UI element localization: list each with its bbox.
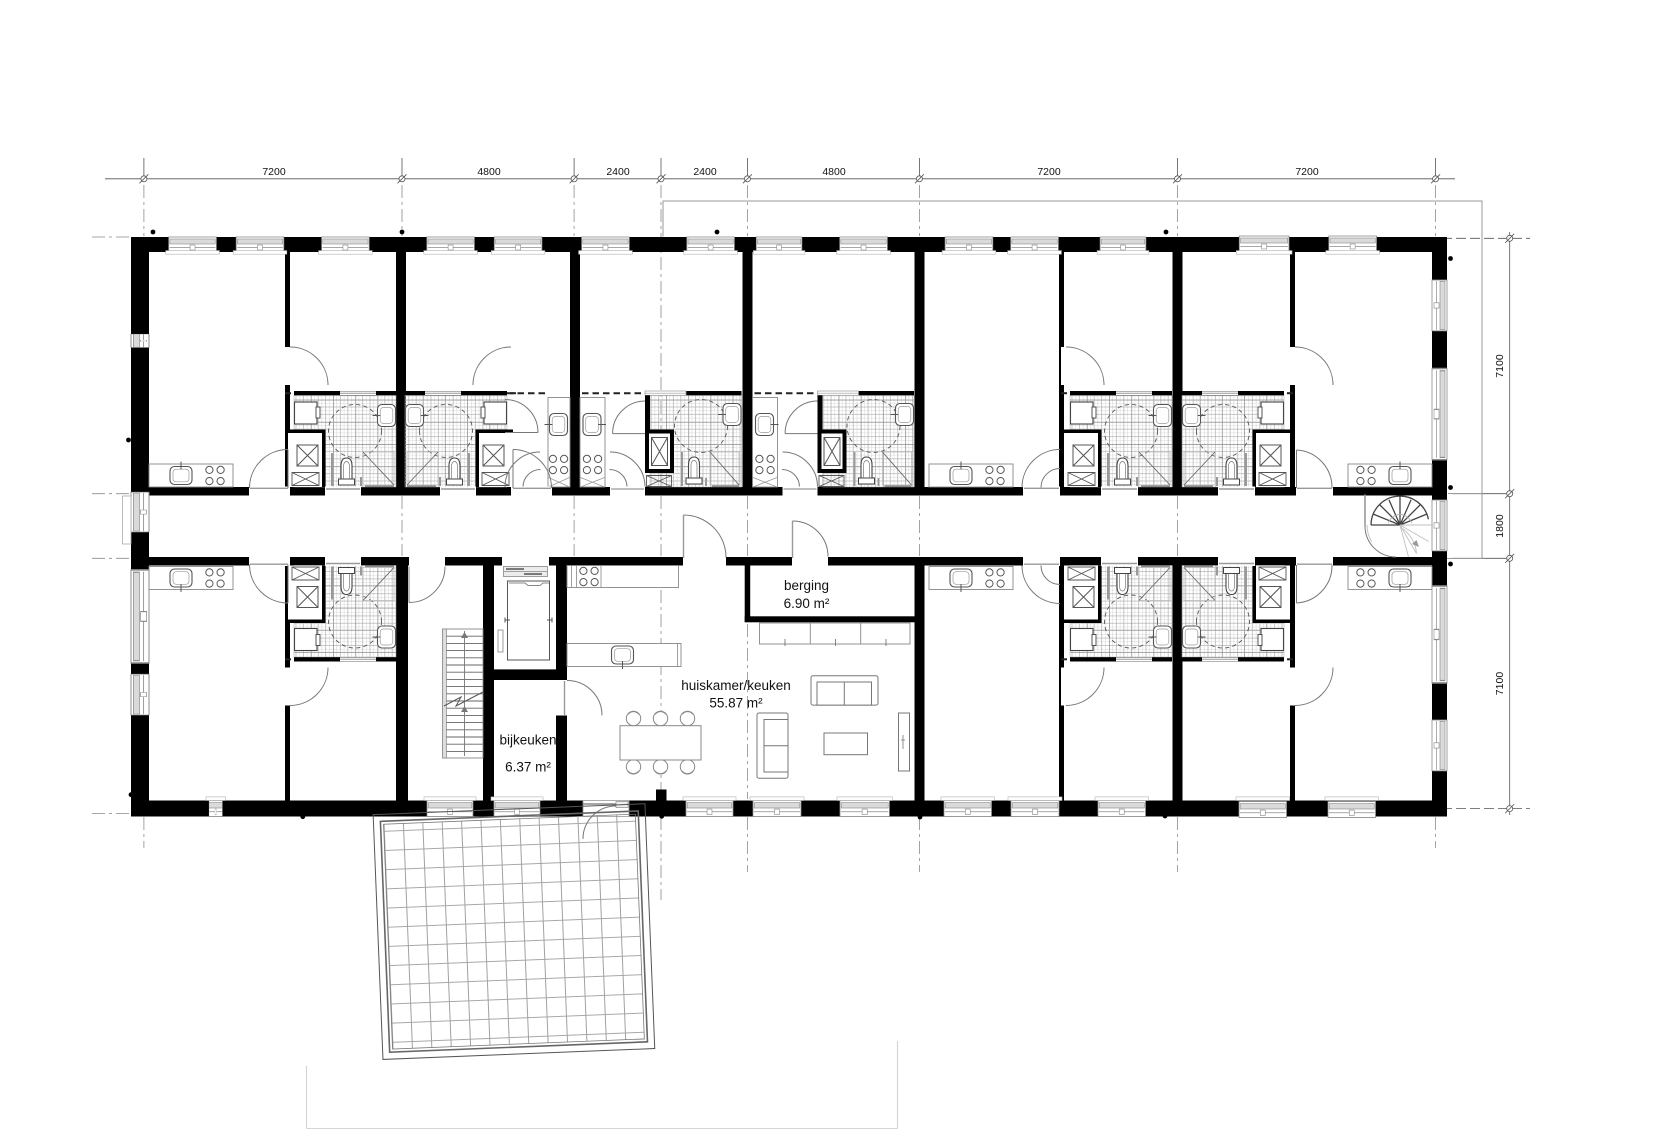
svg-text:55.87 m²: 55.87 m² <box>709 696 763 711</box>
svg-text:7100: 7100 <box>1494 672 1506 696</box>
svg-text:7200: 7200 <box>1295 166 1319 178</box>
svg-text:7200: 7200 <box>262 166 286 178</box>
svg-text:7100: 7100 <box>1494 354 1506 378</box>
svg-text:berging: berging <box>784 578 829 593</box>
svg-text:6.90 m²: 6.90 m² <box>784 596 830 611</box>
svg-text:2400: 2400 <box>693 166 717 178</box>
svg-text:4800: 4800 <box>822 166 846 178</box>
svg-text:bijkeuken: bijkeuken <box>499 733 556 748</box>
svg-text:2400: 2400 <box>606 166 630 178</box>
svg-text:huiskamer/keuken: huiskamer/keuken <box>681 678 791 693</box>
svg-text:4800: 4800 <box>477 166 501 178</box>
svg-text:1800: 1800 <box>1494 514 1506 538</box>
svg-text:6.37 m²: 6.37 m² <box>505 760 551 775</box>
svg-text:7200: 7200 <box>1037 166 1061 178</box>
